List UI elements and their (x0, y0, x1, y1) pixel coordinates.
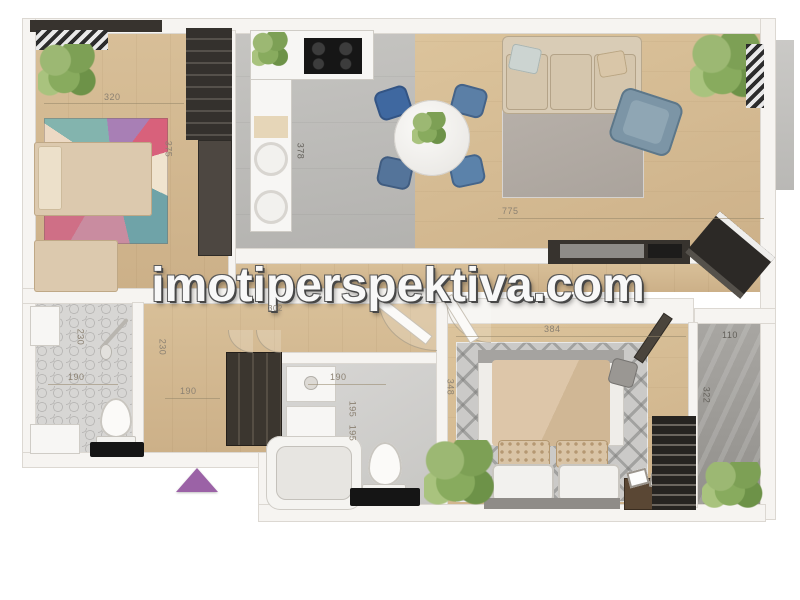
dim-wc-depth-a: 195 (347, 401, 357, 418)
slatted-dresser (652, 416, 696, 510)
bathtub-basin (276, 446, 352, 500)
wall-balcony-top (694, 308, 776, 324)
dim-line (48, 384, 118, 385)
dim-bedroom2-width: 384 (544, 324, 561, 334)
radiator-icon (746, 44, 764, 108)
kitchen-stool (254, 142, 288, 176)
sofa-pillow (596, 50, 628, 78)
kitchen-plant-icon (252, 32, 288, 68)
dim-line (498, 218, 764, 219)
dim-hall-depth: 230 (157, 339, 167, 356)
dim-living-width: 775 (502, 206, 519, 216)
dim-hall-width: 190 (180, 386, 197, 396)
floor-plan-image: 320 375 378 775 imotiperspektiva.com 230… (0, 0, 800, 600)
bed-pillow-white (492, 464, 554, 502)
dim-line (456, 336, 686, 337)
washer-door-icon (304, 376, 318, 390)
dim-line (44, 103, 184, 104)
bedroom2-plant-icon (424, 440, 494, 508)
watermark-text: imotiperspektiva.com (151, 258, 645, 313)
dim-line (165, 398, 220, 399)
wall-bath-hall (132, 302, 144, 454)
bath-mat (90, 442, 144, 457)
bed-headboard (484, 498, 620, 509)
wall-bath-bottom (22, 452, 286, 468)
toilet (100, 398, 132, 438)
tv-screen (560, 244, 644, 258)
kitchen-mat (254, 116, 288, 138)
shower-head-icon (100, 344, 112, 360)
dim-bedroom1-depth: 375 (163, 141, 173, 158)
dim-kitchen-depth: 378 (295, 143, 305, 160)
dim-balcony-depth: 322 (701, 387, 711, 404)
table-plant-icon (412, 112, 446, 146)
wc-cabinet (286, 406, 336, 440)
wc-toilet (368, 442, 402, 486)
cooktop-icon (304, 38, 362, 74)
dim-line (308, 384, 386, 385)
wardrobe-tall (186, 28, 232, 140)
wc-mat (350, 488, 420, 506)
tv-device (648, 244, 682, 258)
dim-bathroom-depth: 230 (75, 329, 85, 346)
bedroom1-daybed (34, 240, 118, 292)
dim-bathroom-width: 190 (68, 372, 85, 382)
sofa-cushion (550, 54, 592, 110)
bedroom2-blanket (492, 360, 610, 446)
bedroom1-bed-pillow (38, 146, 62, 210)
balcony-plant-icon (702, 462, 764, 508)
dim-bedroom1-width: 320 (104, 92, 121, 102)
dim-balcony-width: 110 (722, 330, 738, 340)
dim-hall-small: 302 (268, 304, 283, 313)
logo-triangle-icon (176, 468, 218, 492)
hall-wardrobe (226, 352, 282, 446)
bathroom-vanity (30, 306, 60, 346)
bath-cabinet (30, 424, 80, 454)
dim-bedroom2-depth: 348 (445, 379, 455, 396)
bed-pillow-white (558, 464, 620, 502)
plant-icon (38, 44, 96, 98)
kitchen-stool (254, 190, 288, 224)
wardrobe-lower (198, 140, 232, 256)
dim-wc-depth-b: 195 (347, 425, 357, 442)
dim-wc-width: 190 (330, 372, 347, 382)
